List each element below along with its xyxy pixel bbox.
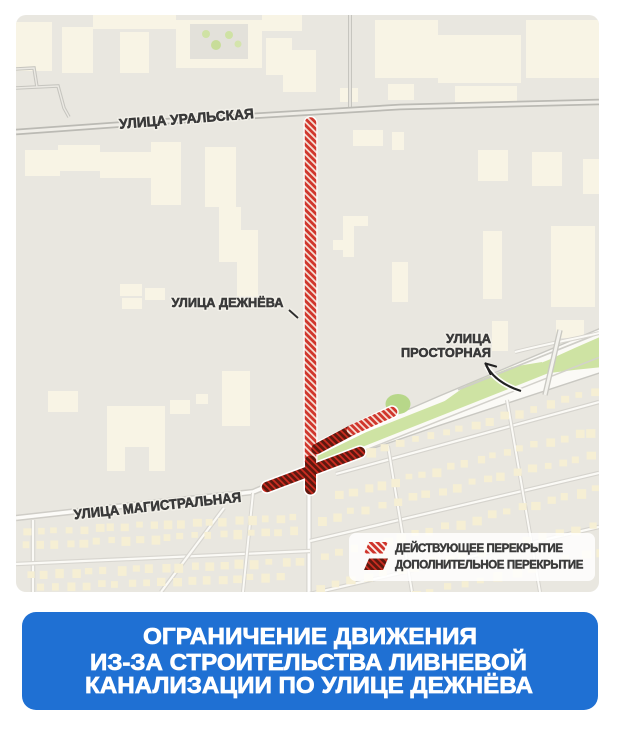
svg-text:ПРОСТОРНАЯ: ПРОСТОРНАЯ [401, 345, 491, 360]
svg-text:КАНАЛИЗАЦИИ ПО УЛИЦЕ ДЕЖНЁВА: КАНАЛИЗАЦИИ ПО УЛИЦЕ ДЕЖНЁВА [85, 672, 533, 698]
svg-text:ДЕЙСТВУЮЩЕЕ ПЕРЕКРЫТИЕ: ДЕЙСТВУЮЩЕЕ ПЕРЕКРЫТИЕ [395, 542, 563, 555]
svg-text:ОГРАНИЧЕНИЕ ДВИЖЕНИЯ: ОГРАНИЧЕНИЕ ДВИЖЕНИЯ [143, 623, 477, 649]
svg-text:ДОПОЛНИТЕЛЬНОЕ ПЕРЕКРЫТИЕ: ДОПОЛНИТЕЛЬНОЕ ПЕРЕКРЫТИЕ [395, 560, 584, 572]
svg-text:УЛИЦА: УЛИЦА [446, 331, 492, 346]
svg-text:УЛИЦА ДЕЖНЁВА: УЛИЦА ДЕЖНЁВА [172, 295, 285, 310]
